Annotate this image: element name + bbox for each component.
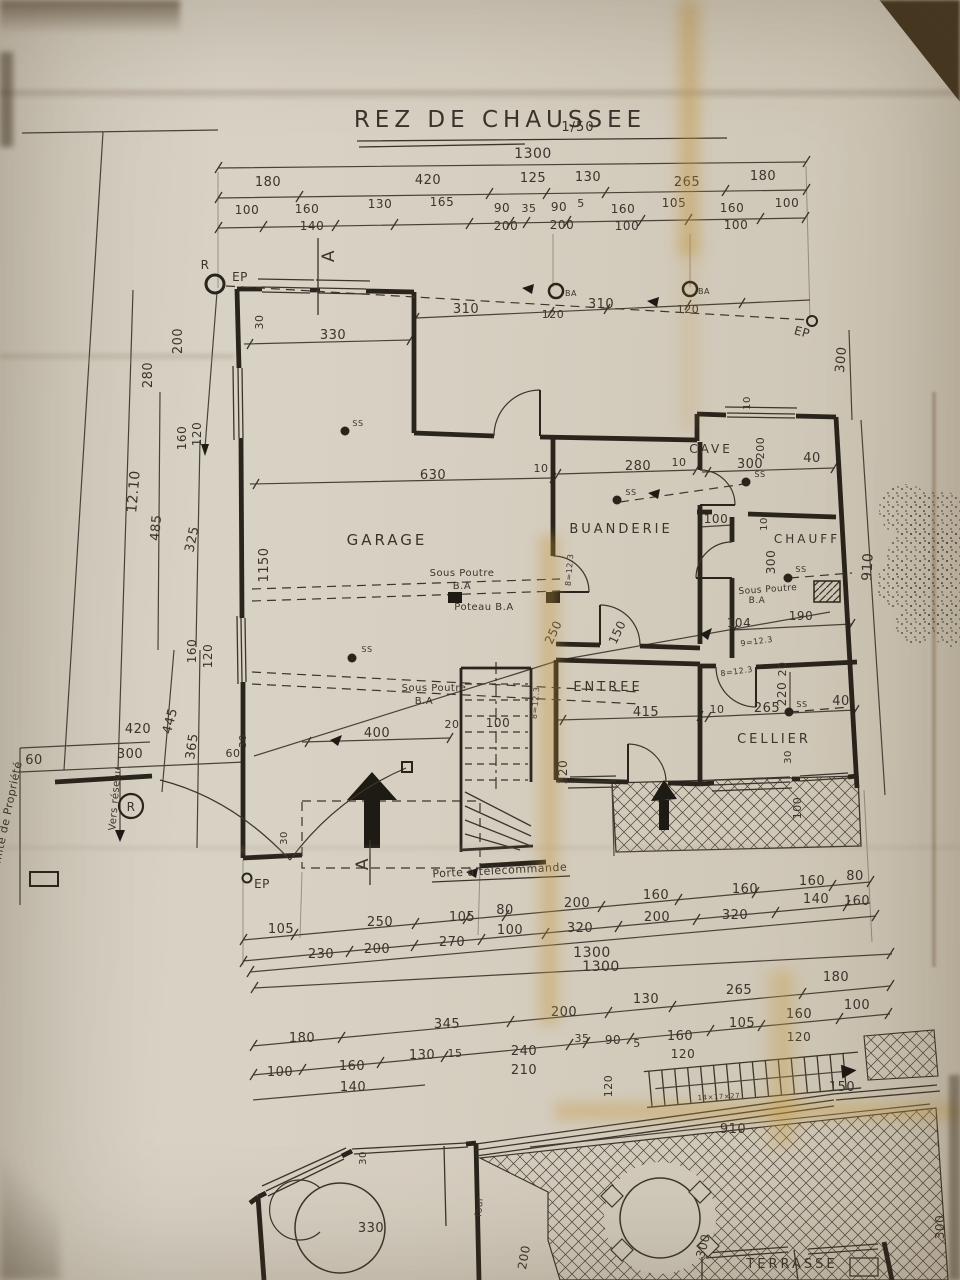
room-label: CELLIER — [737, 732, 811, 747]
dimension-label: 100 — [791, 797, 804, 820]
dimension-label: 200 — [364, 942, 390, 957]
dimension-label: 180 — [289, 1031, 315, 1046]
post-ba-icon — [549, 284, 563, 298]
annotation-label: Poteau B.A — [454, 602, 513, 613]
dimension-label: 200 — [515, 1244, 533, 1270]
stair-direction-arrow — [841, 1063, 857, 1078]
dimension-label: 160 — [643, 888, 669, 903]
dimension-label: 160 — [732, 882, 758, 897]
dimension-label: 365 — [183, 732, 202, 760]
room-label: GARAGE — [347, 531, 428, 549]
marker-label: SS — [361, 645, 372, 654]
dimension-label: 105 — [662, 196, 686, 210]
dimension-label: 330 — [320, 328, 346, 343]
dimension-label: 1300 — [514, 146, 552, 162]
dimension-label: 30 — [358, 1151, 369, 1165]
marker-label: R — [201, 258, 210, 272]
ep-marker-icon — [807, 316, 817, 326]
marker-label: BA — [565, 289, 577, 298]
dimension-label: 280 — [625, 459, 651, 474]
dimension-label: 910 — [859, 552, 876, 581]
dimension-label: 220 — [775, 682, 789, 706]
dimension-label: 60 — [25, 753, 43, 768]
dimension-label: 165 — [430, 195, 454, 209]
dimension-label: 345 — [434, 1017, 460, 1032]
marker-label: EP — [793, 323, 812, 341]
annotation-label: B.A — [749, 596, 766, 606]
dimension-label: 140 — [340, 1080, 366, 1095]
dimension-label: 80 — [496, 903, 514, 918]
dimension-label: 300 — [764, 550, 778, 574]
dimension-label: 10 — [759, 517, 770, 531]
dimension-label: 100 — [615, 219, 639, 233]
dimension-label: 160 — [339, 1059, 365, 1074]
dimension-label: 90 — [551, 200, 567, 214]
dimension-label: 100 — [486, 716, 510, 730]
dimension-label: 200 — [644, 910, 670, 925]
dimension-label: 40 — [803, 451, 821, 466]
floor-plan-drawing: REZ DE CHAUSSEE 1/50 — [0, 0, 960, 1280]
dimension-label: 35 — [575, 1032, 590, 1045]
dimension-label: 320 — [722, 908, 748, 923]
dimension-label: 210 — [511, 1063, 537, 1078]
dimension-label: 150 — [606, 618, 629, 646]
dimension-label: 125 — [520, 171, 546, 186]
dimension-label: 105 — [729, 1016, 755, 1031]
dimension-label: 10 — [672, 456, 687, 469]
garage-arrow — [347, 772, 397, 848]
annotation-label: 8=12.3 — [720, 665, 754, 678]
dimension-label: 320 — [567, 921, 593, 936]
dimension-label: 420 — [125, 722, 151, 737]
annotation-label: 14×17×27 — [697, 1092, 740, 1102]
dimension-label: 80 — [846, 869, 864, 884]
dimension-label: 270 — [439, 935, 465, 950]
dimension-label: 30 — [253, 315, 266, 330]
dimension-label: 60 — [226, 747, 241, 760]
dimension-label: 265 — [674, 175, 700, 190]
marker-label: A — [353, 858, 373, 870]
dimension-label: 910 — [720, 1122, 746, 1137]
room-label: CAVE — [689, 442, 733, 456]
dimension-label: 160 — [667, 1029, 693, 1044]
room-label: ENTREE — [573, 680, 642, 695]
dimension-label: 5 — [633, 1037, 641, 1050]
marker-label: EP — [232, 270, 248, 284]
dimension-lines-layer — [20, 130, 930, 1147]
dimension-label: 445 — [160, 706, 181, 735]
dimension-label: 100 — [235, 203, 259, 217]
annotation-label: B.A — [453, 581, 471, 592]
dimension-label: 120 — [201, 644, 215, 668]
dimension-label: 200 — [171, 328, 186, 354]
chimney-hatch — [814, 581, 840, 602]
annotation-label: 9=12.3 — [740, 635, 774, 648]
marker-label: SS — [625, 488, 636, 497]
dimension-label: 104 — [727, 616, 751, 630]
concrete-post — [546, 592, 560, 603]
room-label: TERRASSE — [745, 1257, 837, 1272]
dimension-label: 100 — [844, 998, 870, 1013]
dimension-label: 105 — [449, 910, 475, 925]
dimension-label: 300 — [117, 747, 143, 762]
dimension-label: 120 — [542, 308, 565, 321]
dimension-label: 10 — [742, 396, 753, 410]
dimension-label: 120 — [787, 1030, 811, 1044]
dimension-label: 140 — [300, 219, 324, 233]
marker-label: SS — [754, 470, 765, 479]
dimension-label: 10 — [534, 462, 549, 475]
dimension-label: 5 — [577, 197, 585, 210]
dimension-label: 1300 — [582, 959, 620, 975]
dimension-label: 180 — [750, 169, 776, 184]
dimension-label: 20 — [445, 718, 460, 731]
dimension-label: 120 — [677, 303, 700, 316]
dimension-label: 100 — [724, 218, 748, 232]
dimension-label: 240 — [511, 1044, 537, 1059]
dimension-label: 160 — [720, 201, 744, 215]
dimension-label: 300 — [833, 346, 850, 374]
dimension-label: 400 — [364, 726, 390, 741]
dimension-label: 180 — [823, 970, 849, 985]
marker-label: R — [127, 800, 136, 814]
dimension-label: 160 — [844, 894, 870, 909]
terrace-corner-hatching — [864, 1030, 938, 1080]
dimension-label: 280 — [141, 362, 156, 388]
annotation-labels: Sous PoutreB.APoteau B.ASous PoutreB.ASo… — [0, 553, 798, 1217]
dimension-label: 100 — [497, 923, 523, 938]
dimension-label: 330 — [358, 1221, 384, 1236]
dimension-label: 230 — [308, 947, 334, 962]
dimension-label: 310 — [588, 297, 614, 312]
dimension-label: 100 — [775, 196, 799, 210]
annotation-label: 8=12.3 — [530, 686, 542, 719]
dimension-label: 100 — [267, 1065, 293, 1080]
garage-door-outline — [302, 801, 480, 868]
drawing-scale: 1/50 — [561, 120, 594, 135]
dimension-label: 420 — [415, 173, 441, 188]
dimension-label: 120 — [671, 1047, 695, 1061]
marker-label: A — [319, 250, 339, 262]
room-label: CHAUFF — [774, 532, 840, 546]
staircase — [461, 668, 533, 852]
dimension-label: 120 — [602, 1075, 615, 1098]
dimension-label: 1150 — [257, 547, 272, 582]
ep-marker-icon — [206, 275, 224, 293]
dimension-label: 320 — [556, 760, 570, 784]
dimension-label: 30 — [279, 831, 290, 845]
dimension-label: 140 — [803, 892, 829, 907]
dimension-label: 30 — [238, 734, 249, 748]
dimension-label: 200 — [494, 219, 518, 233]
dimension-label: 130 — [368, 197, 392, 211]
dimension-label: 20 — [776, 662, 789, 677]
annotation-label: Sous Poutre — [430, 568, 495, 579]
tree-sketch — [876, 484, 960, 647]
porch-hatching — [612, 776, 861, 852]
dimension-label: 630 — [420, 468, 446, 483]
dimension-label: 160 — [185, 639, 199, 663]
marker-label: SS — [352, 419, 363, 428]
dimension-label: 180 — [255, 175, 281, 190]
dimension-label: 160 — [175, 426, 189, 450]
dimension-label: 190 — [789, 609, 813, 623]
dimension-label: 265 — [726, 983, 752, 998]
annotation-label: Sous Poutre — [402, 683, 467, 694]
dimension-label: 100 — [704, 512, 728, 526]
dimension-label: 90 — [494, 201, 510, 215]
dimension-label: 130 — [409, 1048, 435, 1063]
dimension-label: 160 — [786, 1007, 812, 1022]
marker-label: EP — [254, 877, 270, 891]
room-label: BUANDERIE — [569, 522, 672, 537]
dimension-label: 310 — [453, 302, 479, 317]
dimension-label: 200 — [754, 437, 767, 460]
dimension-label: 10 — [710, 703, 725, 716]
annotation-label: Sous Poutre — [738, 583, 797, 597]
symbols-layer — [30, 238, 960, 1274]
dimension-label: 40 — [832, 694, 850, 709]
dimension-label: 250 — [367, 915, 393, 930]
dimension-label: 120 — [190, 422, 204, 446]
dimension-label: 30 — [783, 750, 794, 764]
marker-label: SS — [795, 565, 806, 574]
dimension-label: 200 — [564, 896, 590, 911]
dimension-label: 200 — [551, 1005, 577, 1020]
dimension-label: 415 — [633, 705, 659, 720]
dimension-label: 325 — [183, 525, 203, 554]
dimension-label: 300 — [933, 1215, 947, 1239]
blueprint-photo: REZ DE CHAUSSEE 1/50 — [0, 0, 960, 1280]
marker-label: BA — [698, 287, 710, 296]
dimension-label: 130 — [633, 992, 659, 1007]
dimension-label: 485 — [148, 514, 165, 542]
dimension-label: 12.10 — [124, 470, 144, 514]
annotation-label: 8=12.3 — [564, 553, 576, 586]
dimension-label: 90 — [605, 1033, 621, 1047]
annotation-label: Limite de Propriété — [0, 760, 25, 874]
dimension-label: 150 — [829, 1080, 855, 1095]
marker-label: SS — [796, 700, 807, 709]
page-title: REZ DE CHAUSSEE — [354, 107, 646, 133]
dimension-label: 105 — [268, 922, 294, 937]
dimension-label: 15 — [448, 1047, 463, 1060]
annotation-label: B.A — [415, 696, 433, 707]
dimension-label: 160 — [611, 202, 635, 216]
dimension-label: 200 — [550, 218, 574, 232]
dimension-label: 35 — [522, 202, 537, 215]
annotation-label: four — [474, 1196, 486, 1217]
dimension-label: 130 — [575, 170, 601, 185]
dimension-label: 160 — [295, 202, 319, 216]
title-block: REZ DE CHAUSSEE 1/50 — [354, 107, 727, 147]
ep-marker-icon — [243, 874, 252, 883]
dimension-label: 160 — [799, 874, 825, 889]
